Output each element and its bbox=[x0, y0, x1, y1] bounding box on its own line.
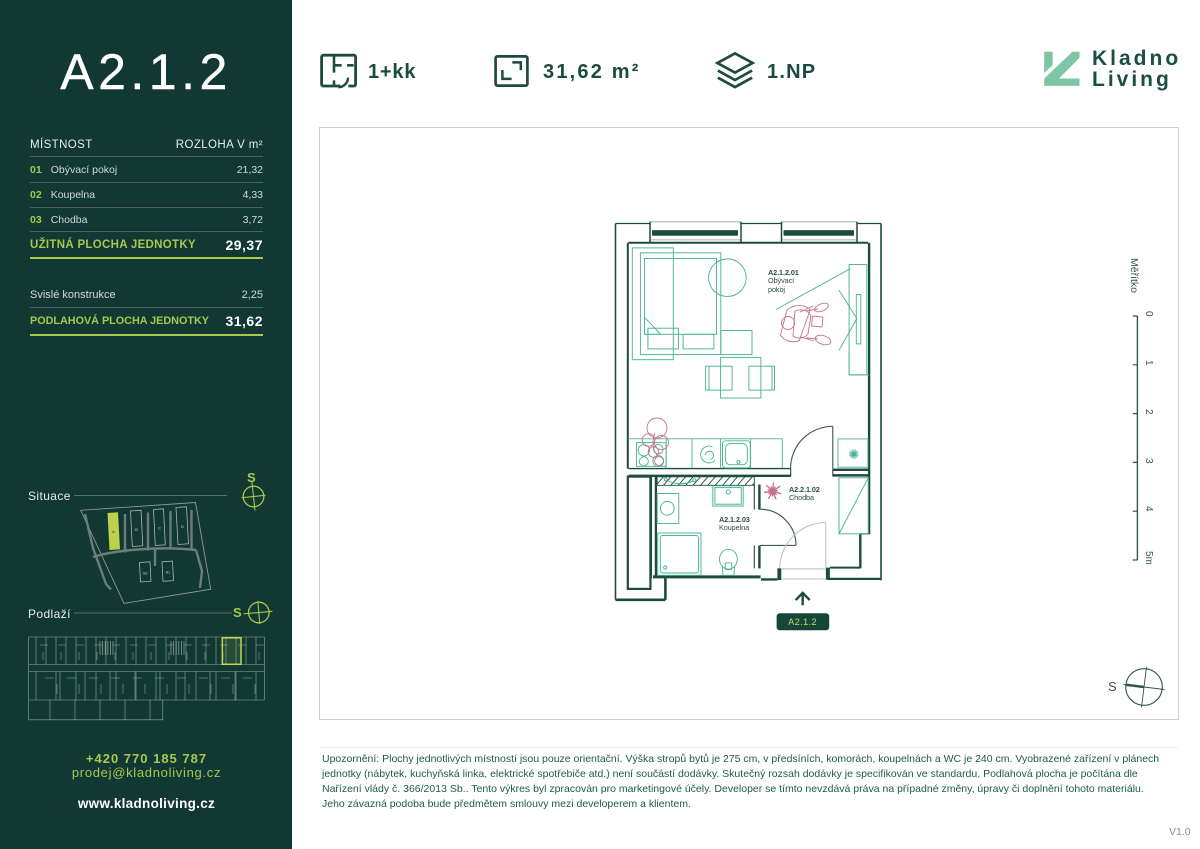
svg-text:B1: B1 bbox=[166, 571, 170, 575]
svg-text:A: A bbox=[112, 529, 115, 534]
svg-text:C: C bbox=[158, 526, 161, 531]
svg-text:B: B bbox=[135, 527, 138, 532]
svg-text:B2: B2 bbox=[143, 572, 147, 576]
svg-text:D: D bbox=[181, 524, 184, 529]
